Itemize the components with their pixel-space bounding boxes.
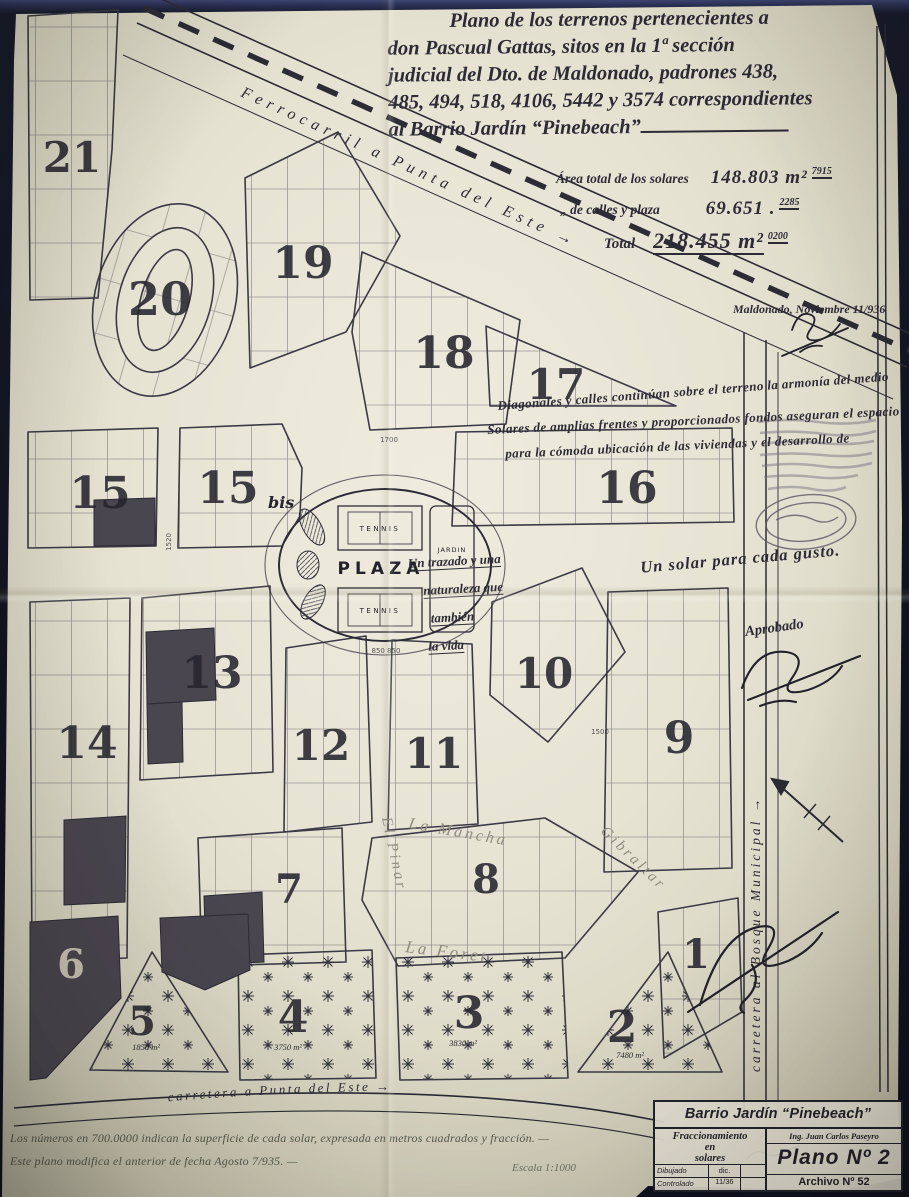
svg-text:1520: 1520: [165, 533, 173, 551]
title-block: Barrio Jardín “Pinebeach” Fraccionamient…: [653, 1100, 903, 1192]
block-3-number: 3: [454, 988, 485, 1039]
block-14-number: 14: [56, 718, 117, 769]
area-row-total: Total 218.455 m² 0200: [604, 228, 788, 254]
titleblock-plan-number: Plano Nº 2: [767, 1144, 901, 1174]
garden-bed: [297, 551, 319, 579]
area-row-solares: Área total de los solares 148.803 m² 791…: [556, 166, 832, 189]
scale-note: Escala 1:1000: [512, 1162, 576, 1174]
photographed-plan: PLAZA TENNIS TENNIS JARDIN 21 20 19 18 1…: [0, 0, 909, 1197]
title-line: al Barrio Jardín “Pinebeach”: [388, 111, 904, 143]
tennis-label-top: TENNIS: [359, 525, 401, 533]
block-11-number: 11: [405, 729, 463, 778]
area-label: Área total de los solares: [556, 171, 689, 186]
area-row-calles: „ de calles y plaza 69.651 . 2285: [560, 197, 799, 220]
block-9-number: 9: [664, 713, 695, 764]
block-15-number: 15: [69, 468, 130, 519]
area-label: „ de calles y plaza: [560, 202, 660, 217]
svg-text:850 850: 850 850: [372, 647, 401, 655]
block-13-number: 13: [181, 648, 242, 699]
area-fraction: 0200: [768, 231, 788, 244]
titleblock-file-number: Archivo Nº 52: [767, 1174, 901, 1190]
block-14: [30, 598, 130, 962]
block-5-number: 5: [128, 998, 156, 1045]
area-value: 69.651 .: [706, 198, 776, 219]
block-2-number: 2: [607, 1002, 638, 1053]
block-8-number: 8: [472, 856, 500, 903]
block-20-number: 20: [128, 272, 192, 326]
svg-text:1850 m²: 1850 m²: [132, 1042, 160, 1052]
block-21-number: 21: [43, 133, 101, 182]
area-fraction: 7915: [812, 166, 832, 179]
titleblock-subtitle: Fraccionamiento en solares: [655, 1129, 765, 1164]
plan-title: Plano de los terrenos pertenecientes a d…: [387, 3, 904, 143]
block-15bis-suffix: bis: [268, 493, 294, 512]
svg-text:1700: 1700: [380, 436, 398, 444]
svg-text:3750 m²: 3750 m²: [273, 1042, 302, 1052]
svg-text:1500: 1500: [591, 728, 609, 736]
block-12-number: 12: [292, 721, 350, 770]
area-fraction: 2285: [779, 197, 799, 210]
block-6-number: 6: [57, 941, 85, 988]
block-19-number: 19: [272, 238, 333, 289]
titleblock-drawn-row: Dibujado dic. 11/36: [655, 1164, 765, 1177]
title-underline: [641, 116, 789, 134]
titleblock-engineer: Ing. Juan Carlos Paseyro: [767, 1129, 901, 1144]
titleblock-checked-row: Controlado: [655, 1177, 765, 1190]
block-10-number: 10: [515, 649, 573, 698]
area-value: 218.455 m²: [653, 228, 764, 255]
block-4-number: 4: [278, 992, 309, 1043]
tennis-label-bottom: TENNIS: [359, 607, 401, 615]
block-7-number: 7: [275, 866, 303, 913]
plan-date: Maldonado, Noviembre 11/936: [733, 302, 885, 317]
plaza-note: Un trazado y una naturaleza que también …: [407, 542, 553, 661]
svg-text:7480 m²: 7480 m²: [616, 1050, 644, 1060]
block-1-number: 1: [682, 931, 710, 978]
road-right-label: carretera al Bosque Municipal →: [748, 796, 763, 1072]
area-value: 148.803 m²: [711, 167, 808, 188]
area-label: Total: [604, 236, 635, 252]
footnote-1: Los números en 700.0000 indican la super…: [10, 1127, 658, 1150]
block-15bis-number: 15: [197, 463, 258, 514]
block-16-number: 16: [596, 463, 657, 514]
block-18-number: 18: [413, 328, 474, 379]
svg-text:3830 m²: 3830 m²: [448, 1038, 477, 1048]
titleblock-name: Barrio Jardín “Pinebeach”: [655, 1102, 901, 1129]
